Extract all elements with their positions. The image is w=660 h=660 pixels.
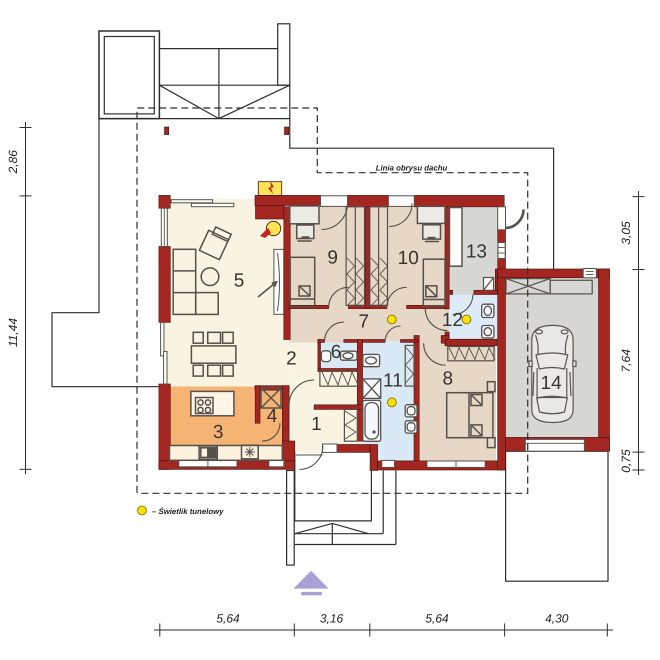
- svg-text:4: 4: [267, 406, 278, 427]
- svg-text:Linia obrysu dachu: Linia obrysu dachu: [376, 164, 448, 173]
- svg-text:3: 3: [213, 422, 224, 443]
- svg-text:12: 12: [442, 310, 463, 331]
- svg-text:7: 7: [359, 312, 370, 333]
- svg-text:1: 1: [311, 414, 322, 435]
- svg-text:14: 14: [541, 373, 563, 394]
- svg-text:5,64: 5,64: [425, 612, 449, 626]
- svg-text:9: 9: [327, 248, 338, 269]
- svg-text:0,75: 0,75: [619, 449, 633, 473]
- svg-text:3,05: 3,05: [619, 221, 633, 245]
- svg-text:3,16: 3,16: [320, 612, 344, 626]
- svg-text:2,86: 2,86: [6, 150, 20, 175]
- svg-text:10: 10: [398, 248, 419, 269]
- svg-text:2: 2: [286, 349, 297, 370]
- svg-text:11,44: 11,44: [6, 318, 20, 347]
- svg-text:4,30: 4,30: [545, 612, 569, 626]
- svg-text:– Świetlik tunelowy: – Świetlik tunelowy: [152, 507, 224, 516]
- svg-text:5,64: 5,64: [216, 612, 240, 626]
- svg-text:7,64: 7,64: [619, 349, 633, 373]
- svg-text:8: 8: [443, 368, 454, 389]
- svg-text:6: 6: [331, 342, 342, 363]
- svg-text:13: 13: [466, 242, 487, 263]
- svg-text:5: 5: [234, 271, 245, 292]
- svg-text:11: 11: [383, 371, 403, 392]
